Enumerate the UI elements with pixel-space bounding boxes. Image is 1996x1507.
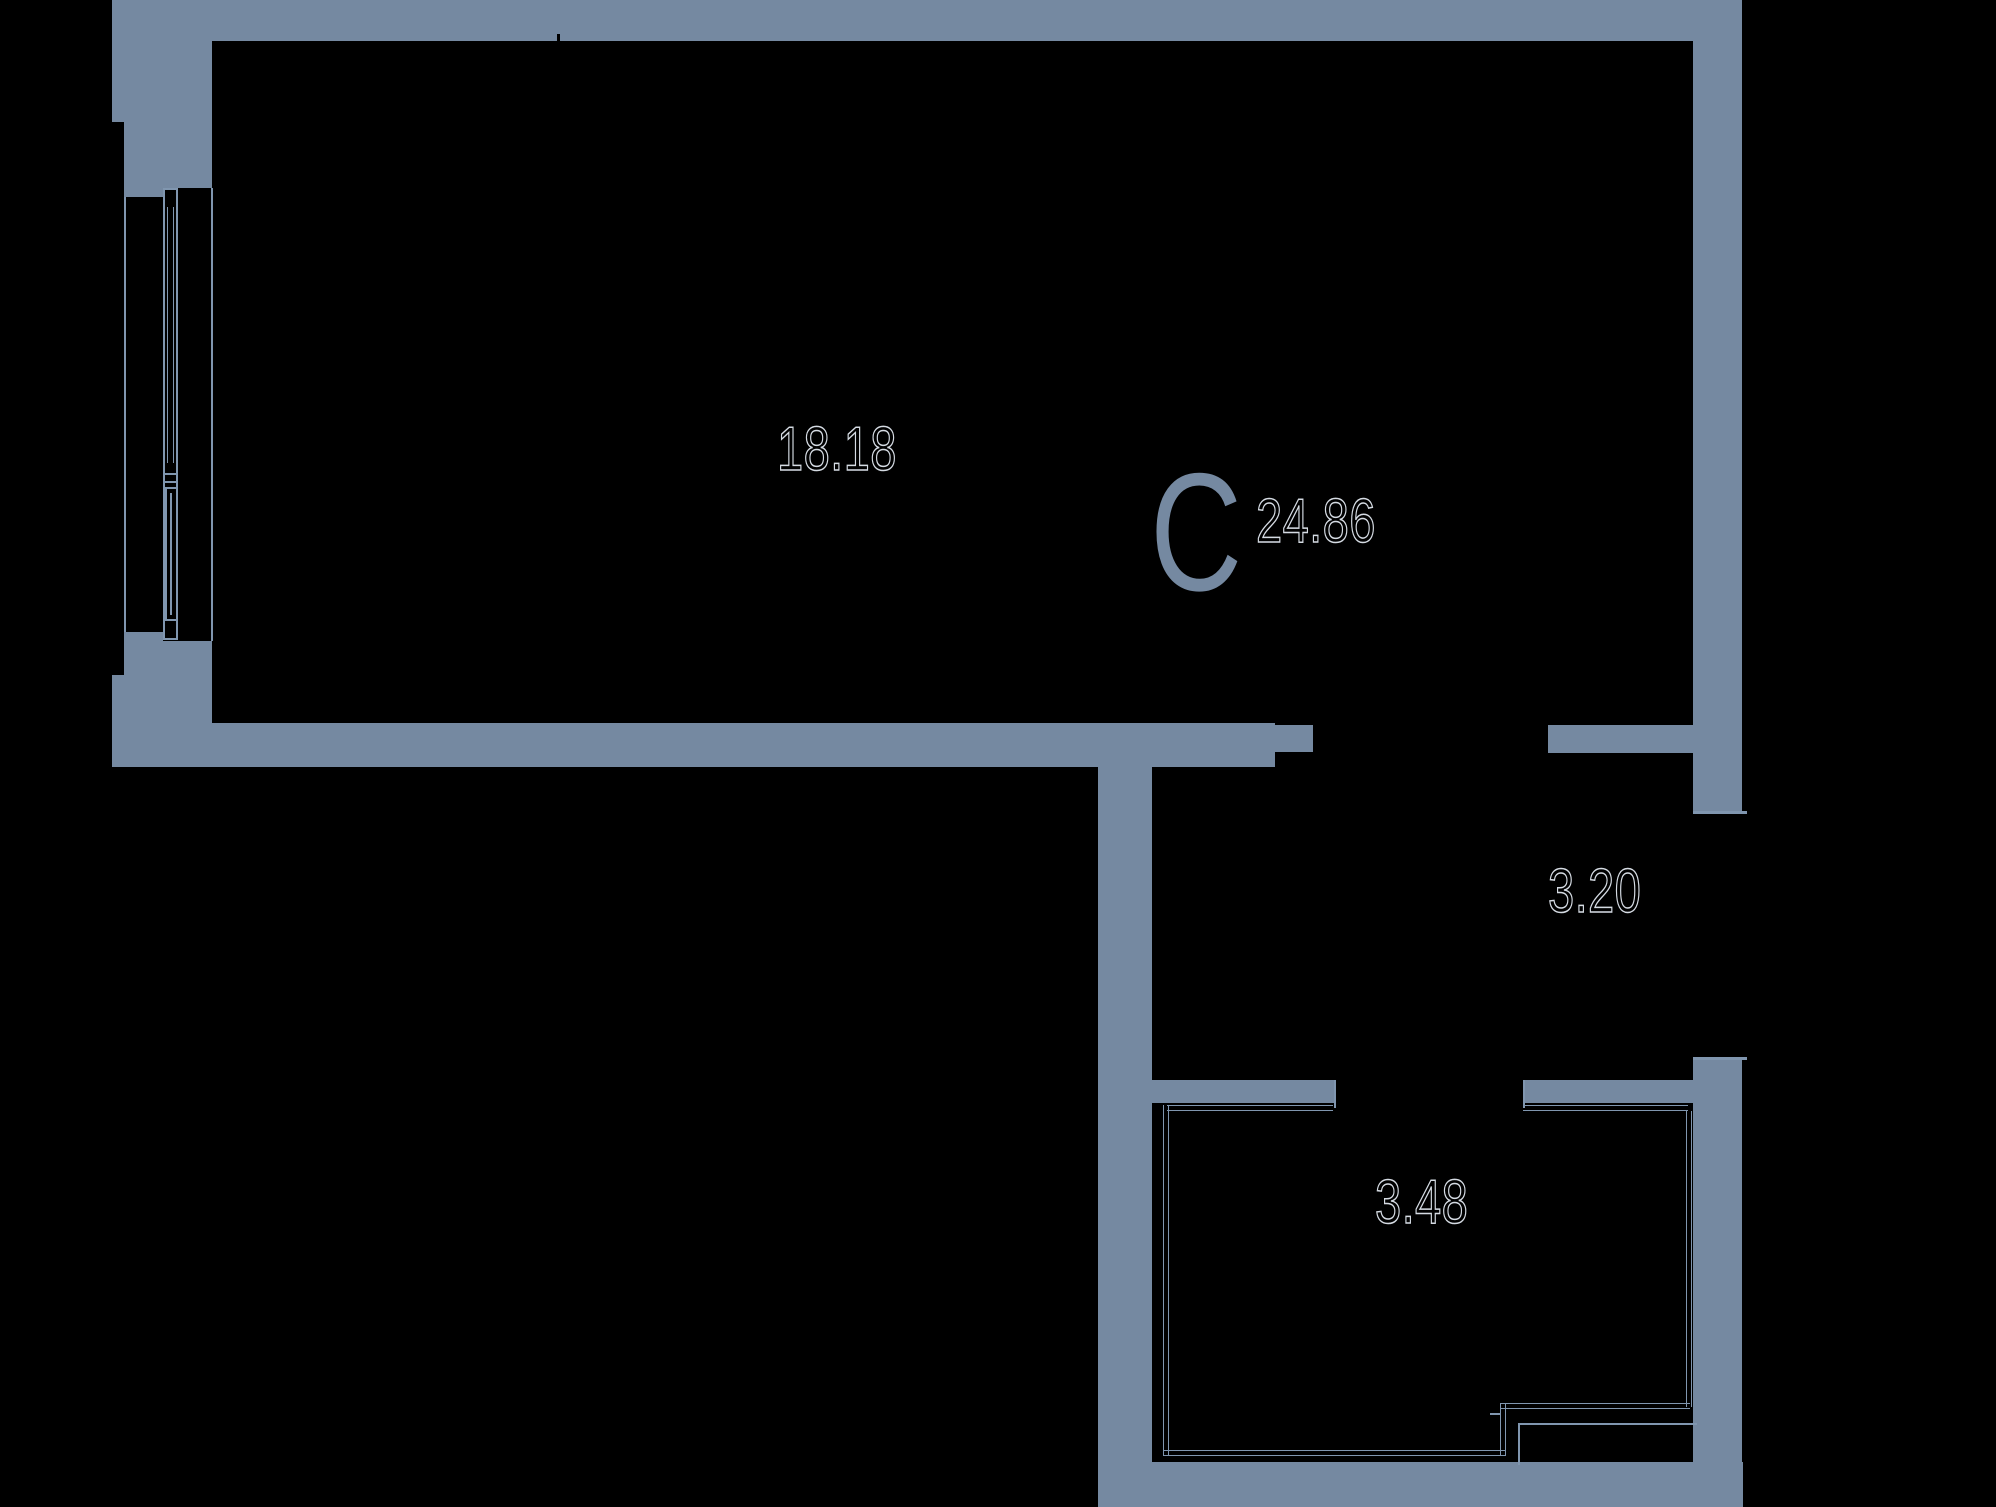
- bathroom-outline-right: [1686, 1111, 1692, 1407]
- wall-bathroom-top-left: [1152, 1080, 1335, 1103]
- bathroom-outline-bottom-right: [1500, 1403, 1690, 1409]
- window-sash-divider-a: [163, 473, 178, 475]
- bathroom-outline-left: [1163, 1105, 1169, 1456]
- wall-bathroom-top-right: [1523, 1080, 1693, 1103]
- bathroom-area-label: 3.48: [1375, 1172, 1468, 1234]
- partition-door-right: [1548, 725, 1693, 753]
- bathroom-outline-top-left: [1167, 1105, 1333, 1111]
- window-lower-sash-glass: [170, 493, 172, 615]
- hallway-area-label: 3.20: [1548, 861, 1641, 923]
- wall-top-joint-tick: [557, 34, 560, 41]
- wall-right-upper: [1693, 0, 1742, 812]
- wall-hallway-left: [1098, 767, 1152, 1507]
- window-upper-sash-glass: [167, 207, 174, 463]
- bathroom-outline-top-right: [1523, 1105, 1688, 1111]
- floor-plan: 18.18 C 24.86 3.20 3.48: [0, 0, 1996, 1507]
- bathroom-outline-step: [1500, 1403, 1506, 1456]
- wall-top-exterior: [112, 0, 1742, 41]
- bathroom-door-jamb-right: [1523, 1080, 1525, 1108]
- bathroom-door-jamb-left: [1334, 1080, 1336, 1108]
- entrance-door-jamb-tick: [1490, 1413, 1500, 1415]
- wall-right-lower: [1693, 1059, 1742, 1507]
- right-opening-top-tick: [1693, 811, 1747, 814]
- window-sash-divider-b: [163, 481, 178, 483]
- wall-left-upper: [112, 0, 212, 122]
- wall-bottom-exterior: [1098, 1462, 1743, 1507]
- living-room-area-label: 18.18: [777, 419, 897, 481]
- wall-livingroom-bottom: [112, 723, 1275, 767]
- window-outer-sill-line: [124, 197, 126, 632]
- entrance-door-leaf: [1518, 1423, 1697, 1465]
- wall-left-above-window-b: [163, 122, 212, 188]
- wall-left-above-window-a: [124, 122, 163, 197]
- window-inner-face-line: [211, 188, 213, 641]
- apartment-type-label: C: [1150, 448, 1242, 616]
- bathroom-outline-bottom-left: [1163, 1450, 1505, 1456]
- total-area-label: 24.86: [1256, 491, 1376, 553]
- right-opening-bottom-tick: [1693, 1057, 1747, 1060]
- partition-door-left: [1275, 725, 1313, 752]
